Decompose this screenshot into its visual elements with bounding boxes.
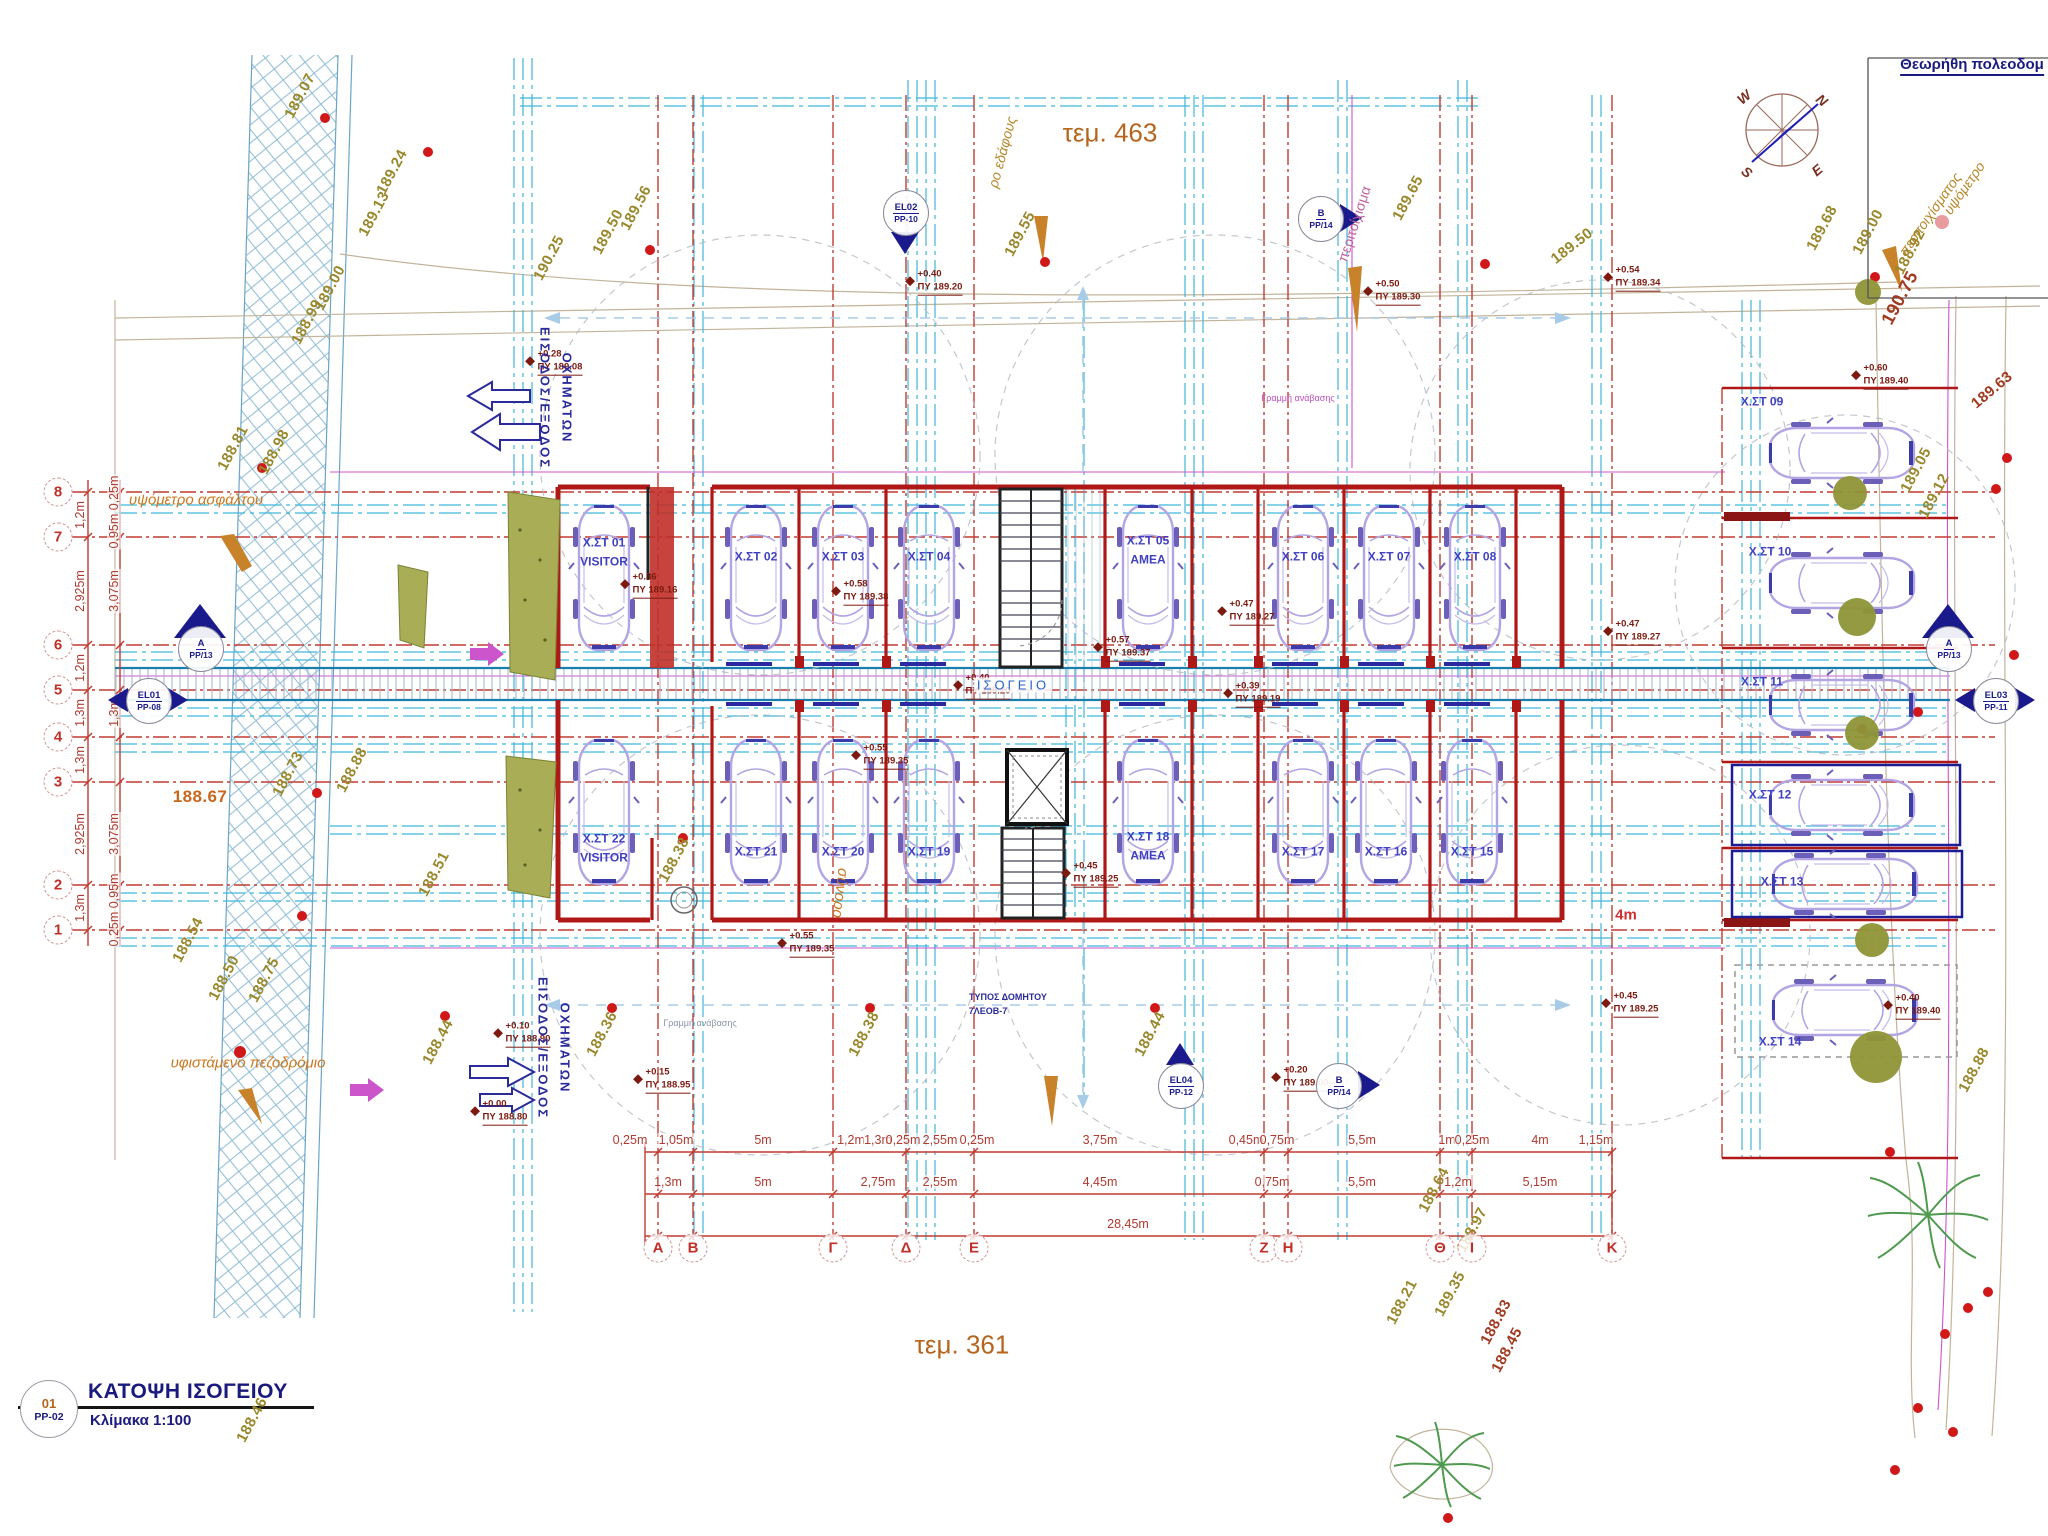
sheet-number: 01 <box>42 1396 56 1411</box>
floor-plan-linework <box>0 0 2048 1536</box>
compass-rose <box>1746 94 1818 166</box>
drawing-title: ΚΑΤΟΨΗ ΙΣΟΓΕΙΟΥ <box>88 1380 288 1404</box>
central-walkway-hatch <box>115 669 1953 700</box>
elevator-shaft <box>1007 750 1067 824</box>
drawing-scale: Κλίμακα 1:100 <box>90 1412 191 1429</box>
parked-cars <box>569 418 1917 1045</box>
floor-plan-canvas: 01 PP-02 ΚΑΤΟΨΗ ΙΣΟΓΕΙΟΥ Κλίμακα 1:100 c… <box>0 0 2048 1536</box>
access-lane-hatch <box>1064 489 1104 667</box>
stair-core <box>1000 489 1067 918</box>
sheet-ref-bubble: 01 PP-02 <box>20 1380 78 1438</box>
sheet-code: PP-02 <box>34 1411 63 1423</box>
fern-trees <box>1394 1162 1988 1507</box>
